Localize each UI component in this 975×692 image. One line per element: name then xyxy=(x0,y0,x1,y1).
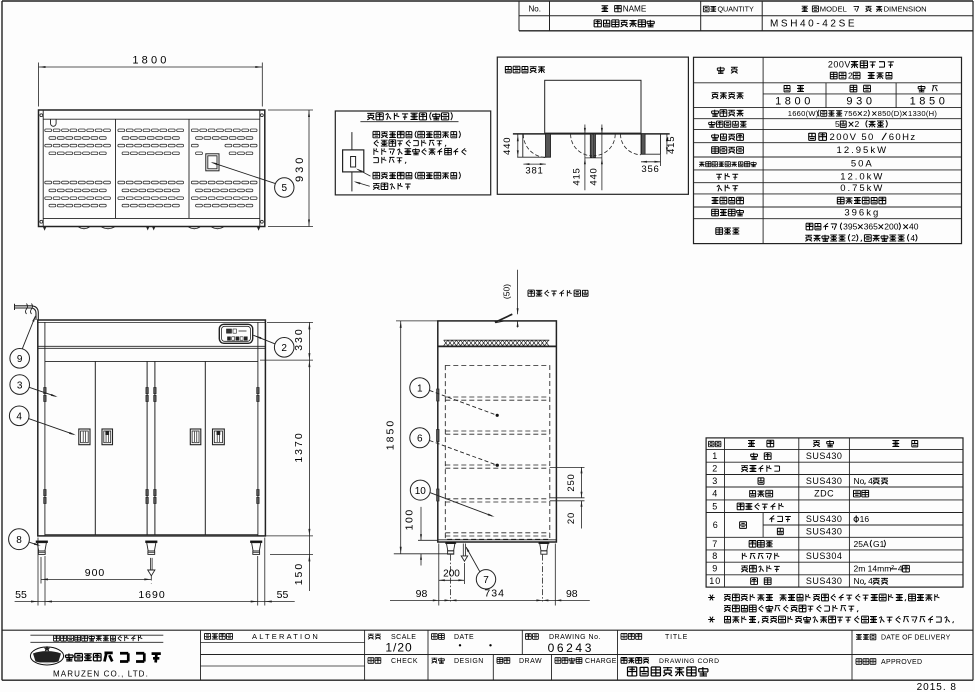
svg-text:3: 3 xyxy=(17,380,23,391)
svg-text:DATE OF DELIVERY: DATE OF DELIVERY xyxy=(881,635,951,642)
svg-text:2015. 8: 2015. 8 xyxy=(917,682,957,692)
svg-text:4: 4 xyxy=(868,476,873,486)
svg-text:0.75kW: 0.75kW xyxy=(840,183,884,194)
svg-text:(50): (50) xyxy=(502,284,512,299)
svg-text:1800: 1800 xyxy=(132,55,169,67)
svg-text:330: 330 xyxy=(293,327,305,351)
svg-text:SUS430: SUS430 xyxy=(806,526,843,536)
svg-text:1: 1 xyxy=(417,383,423,394)
svg-text:415: 415 xyxy=(666,136,677,154)
svg-text:2: 2 xyxy=(854,119,859,129)
svg-text:1850: 1850 xyxy=(385,419,397,450)
svg-text:9: 9 xyxy=(17,354,23,365)
svg-text:DRAWING CORD: DRAWING CORD xyxy=(659,658,720,665)
svg-text:381: 381 xyxy=(525,166,543,177)
svg-text:5: 5 xyxy=(712,501,718,511)
svg-text:930: 930 xyxy=(846,96,875,108)
svg-text:250: 250 xyxy=(566,473,577,491)
svg-text:7: 7 xyxy=(712,539,718,549)
svg-text:734: 734 xyxy=(484,588,505,600)
svg-text:2: 2 xyxy=(712,464,718,474)
svg-text:900: 900 xyxy=(85,567,106,579)
svg-text:No: No xyxy=(854,576,865,586)
svg-text:8: 8 xyxy=(16,535,22,546)
svg-text:440: 440 xyxy=(502,137,513,155)
svg-text:SUS430: SUS430 xyxy=(806,476,843,486)
svg-text:06243: 06243 xyxy=(548,641,594,655)
svg-text:2: 2 xyxy=(851,233,856,243)
svg-text:1690: 1690 xyxy=(138,589,165,601)
svg-text:DIMENSION: DIMENSION xyxy=(884,5,927,14)
svg-text:1: 1 xyxy=(712,451,718,461)
svg-text:365: 365 xyxy=(864,222,878,232)
svg-text:756: 756 xyxy=(844,109,857,118)
svg-text:SUS430: SUS430 xyxy=(806,514,843,524)
svg-text:25A: 25A xyxy=(854,539,869,549)
svg-text:55: 55 xyxy=(15,589,27,601)
svg-text:50A: 50A xyxy=(851,159,874,170)
svg-text:DRAW: DRAW xyxy=(519,658,542,665)
svg-text:396kg: 396kg xyxy=(844,208,880,219)
svg-text:200V: 200V xyxy=(828,60,851,70)
svg-text:9: 9 xyxy=(712,564,718,574)
svg-text:QUANTITY: QUANTITY xyxy=(717,5,754,14)
svg-text:200V 50: 200V 50 xyxy=(830,132,875,143)
svg-text:DRAWING No.: DRAWING No. xyxy=(549,634,601,641)
svg-text:4: 4 xyxy=(16,412,22,423)
svg-text:4: 4 xyxy=(910,233,915,243)
svg-text:850(D): 850(D) xyxy=(878,109,903,118)
svg-text:SUS430: SUS430 xyxy=(806,576,843,586)
svg-text:1/20: 1/20 xyxy=(385,641,412,655)
svg-text:ZDC: ZDC xyxy=(814,489,834,499)
svg-text:930: 930 xyxy=(294,155,306,182)
svg-text:1660(W): 1660(W) xyxy=(788,109,819,118)
svg-text:356: 356 xyxy=(641,164,659,175)
svg-text:7: 7 xyxy=(483,575,489,586)
svg-text:1330(H): 1330(H) xyxy=(908,109,937,118)
svg-text:SUS430: SUS430 xyxy=(806,451,843,461)
svg-text:150: 150 xyxy=(293,562,305,586)
svg-text:10: 10 xyxy=(415,486,427,497)
svg-text:20: 20 xyxy=(566,512,577,524)
svg-text:55: 55 xyxy=(277,589,289,601)
svg-text:NAME: NAME xyxy=(623,5,647,14)
svg-text:200: 200 xyxy=(884,222,898,232)
svg-text:8: 8 xyxy=(712,551,718,561)
svg-text:1850: 1850 xyxy=(910,96,949,108)
svg-text:APPROVED: APPROVED xyxy=(881,659,922,666)
svg-text:5: 5 xyxy=(282,183,288,194)
svg-text:2: 2 xyxy=(848,71,853,81)
svg-text:2: 2 xyxy=(863,109,867,118)
svg-text:MARUZEN CO., LTD.: MARUZEN CO., LTD. xyxy=(53,670,149,679)
svg-text:440: 440 xyxy=(588,167,599,185)
svg-text:16: 16 xyxy=(860,514,870,524)
svg-text:12.95kW: 12.95kW xyxy=(837,145,889,156)
svg-text:G1: G1 xyxy=(873,539,885,549)
svg-text:6: 6 xyxy=(417,434,423,445)
svg-text:CHARGE: CHARGE xyxy=(585,658,617,665)
svg-text:DESIGN: DESIGN xyxy=(454,658,484,665)
svg-text:40: 40 xyxy=(909,222,919,232)
svg-text:10: 10 xyxy=(709,576,721,586)
svg-text:60Hz: 60Hz xyxy=(889,132,917,143)
svg-text:ALTERATION: ALTERATION xyxy=(252,632,320,641)
svg-text:3: 3 xyxy=(712,476,718,486)
svg-text:6: 6 xyxy=(713,520,718,530)
svg-text:12.0kW: 12.0kW xyxy=(840,172,884,183)
svg-text:No.: No. xyxy=(529,5,541,14)
svg-text:200: 200 xyxy=(443,569,460,580)
svg-text:CHECK: CHECK xyxy=(391,658,418,665)
svg-text:TITLE: TITLE xyxy=(665,634,688,641)
svg-text:No: No xyxy=(854,476,865,486)
svg-text:SUS304: SUS304 xyxy=(806,551,843,561)
svg-text:4: 4 xyxy=(868,576,873,586)
svg-text:415: 415 xyxy=(571,167,582,185)
svg-text:98: 98 xyxy=(416,588,428,600)
svg-text:395: 395 xyxy=(843,222,857,232)
svg-text:MSH40-42SE: MSH40-42SE xyxy=(770,19,857,30)
svg-text:98: 98 xyxy=(566,588,578,600)
svg-text:2: 2 xyxy=(281,343,287,354)
svg-text:1370: 1370 xyxy=(293,431,305,462)
svg-text:5: 5 xyxy=(835,119,840,129)
svg-text:2m 14mm²: 2m 14mm² xyxy=(854,564,895,574)
svg-text:MODEL: MODEL xyxy=(820,5,847,14)
svg-text:DATE: DATE xyxy=(454,634,474,641)
svg-text:100: 100 xyxy=(404,508,416,530)
svg-text:4: 4 xyxy=(712,489,718,499)
svg-text:1800: 1800 xyxy=(775,96,814,108)
